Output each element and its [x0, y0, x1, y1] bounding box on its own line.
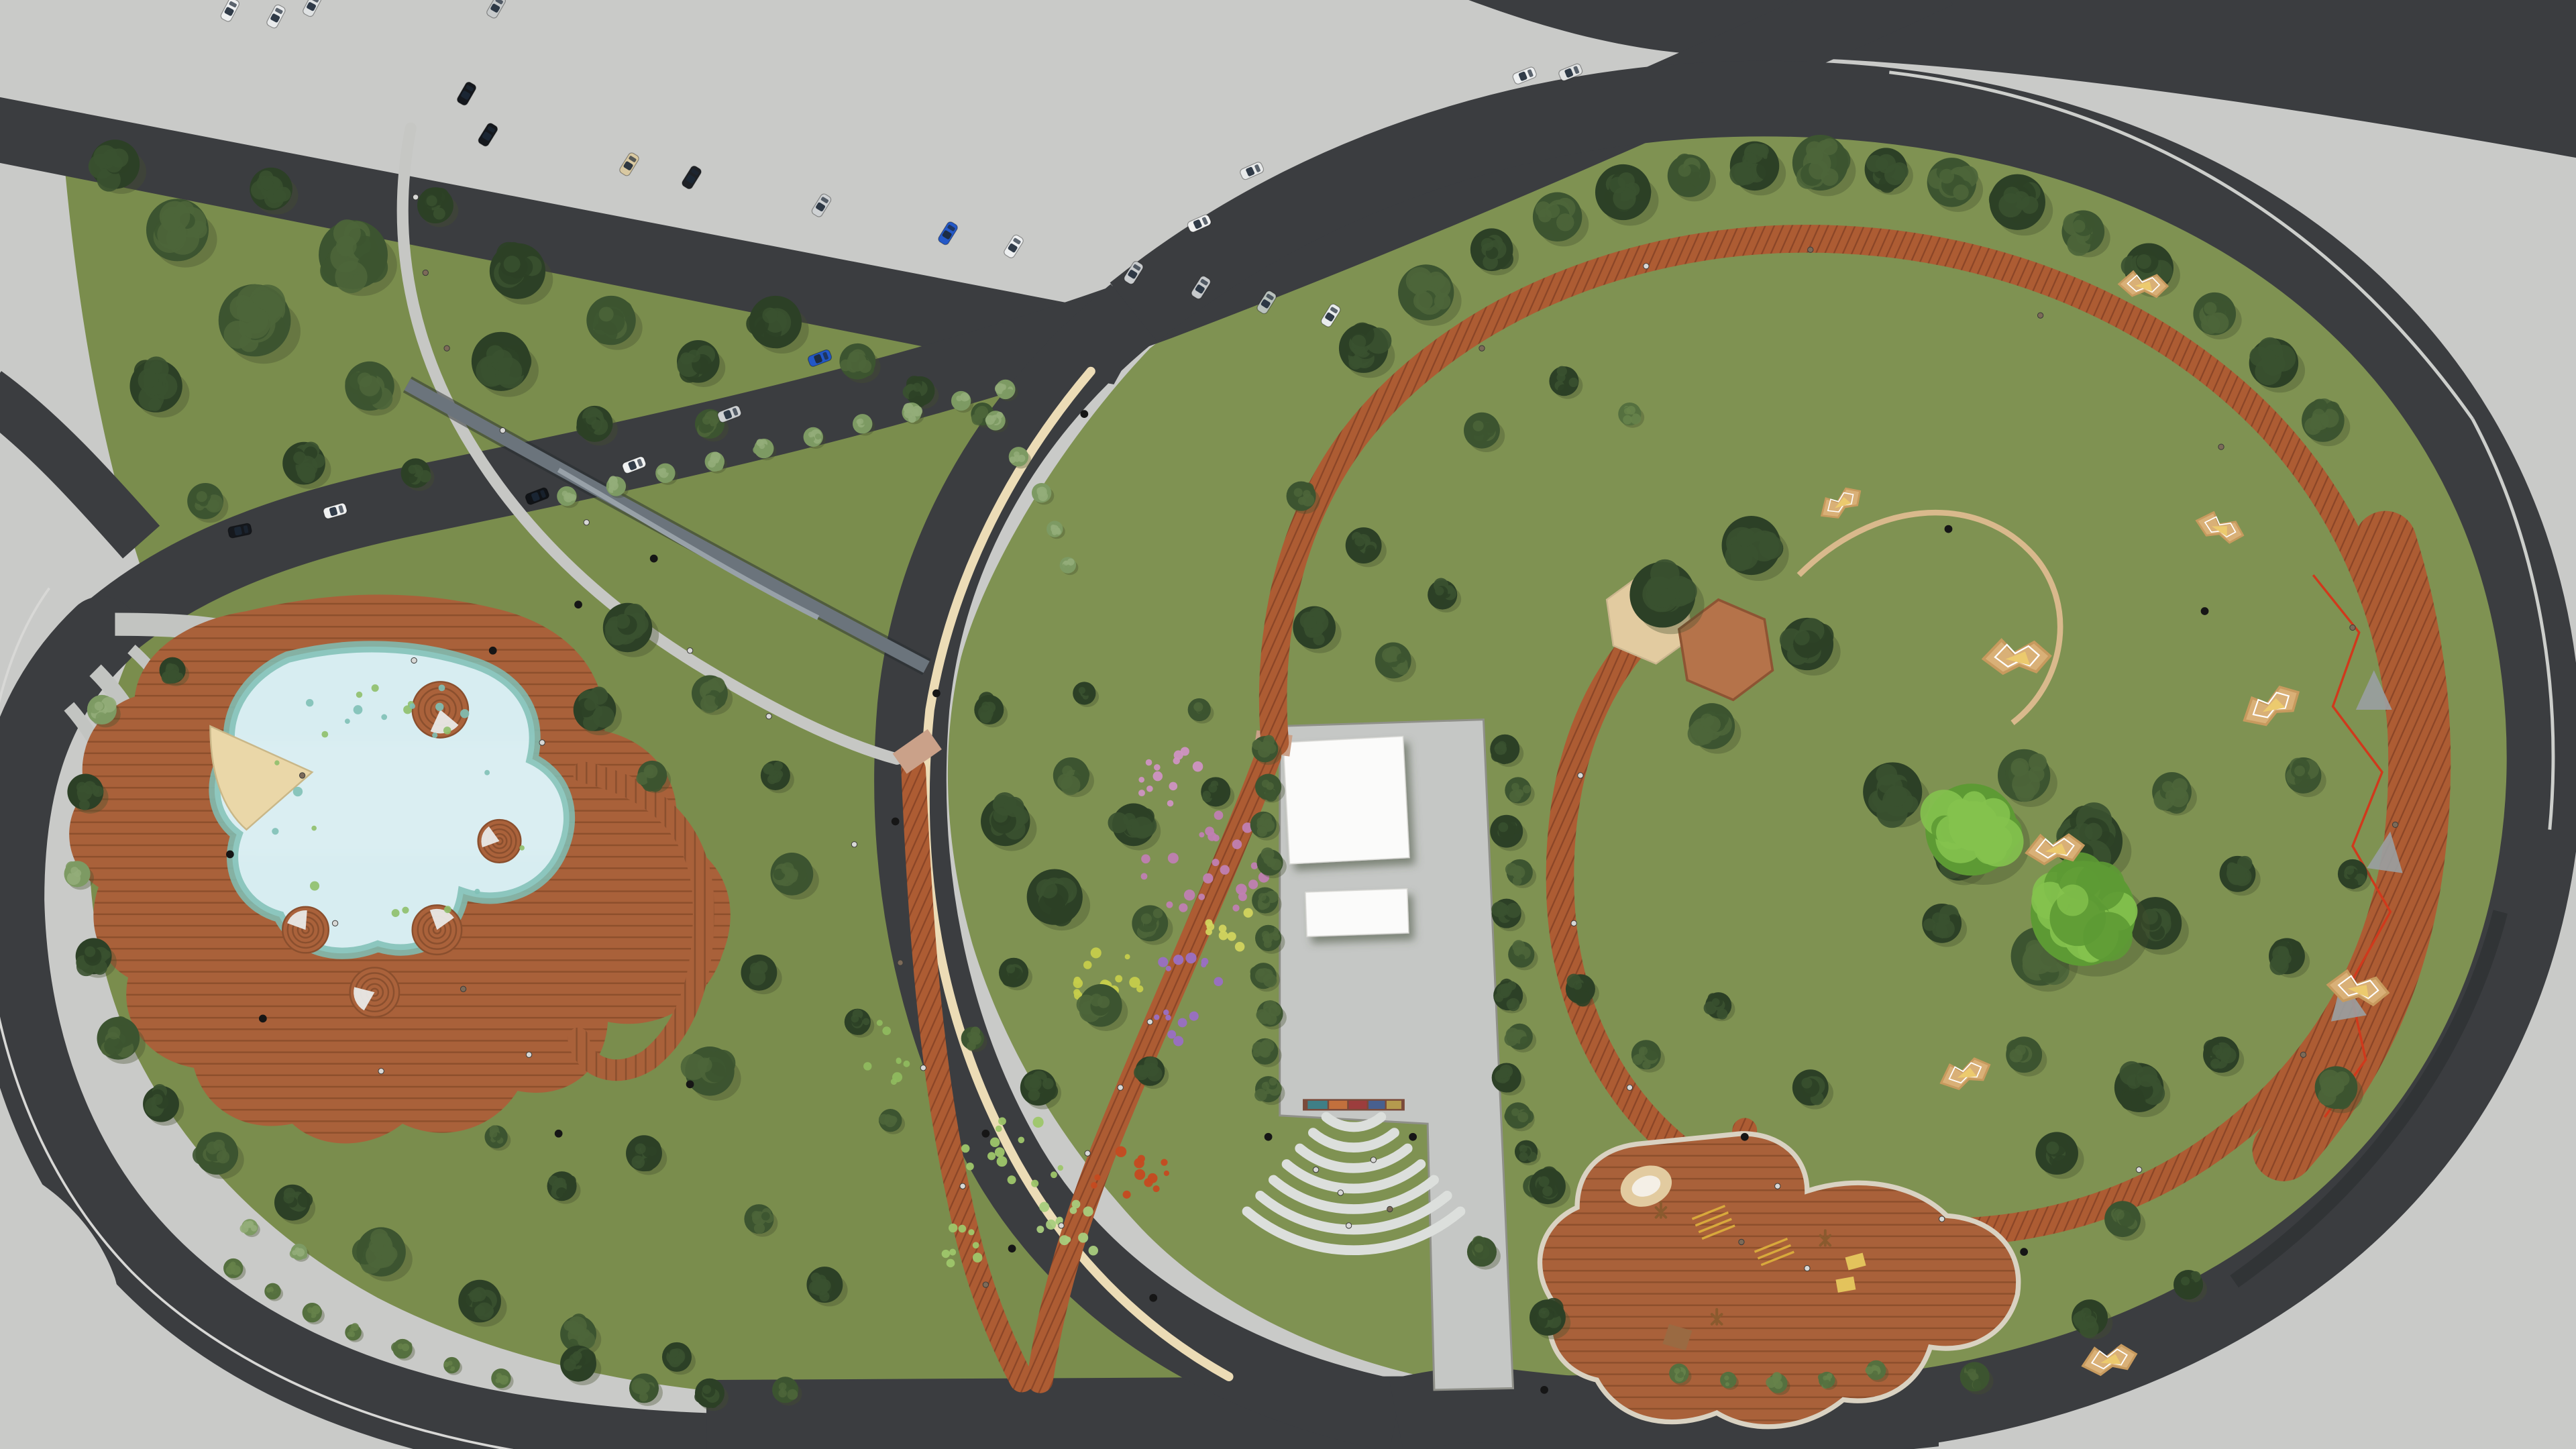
spiral-deck: [478, 820, 521, 863]
bollard: [2020, 1248, 2028, 1256]
person-dot: [413, 195, 418, 200]
person-dot: [2037, 313, 2043, 318]
person-dot: [983, 1282, 988, 1287]
building-main: [1283, 737, 1409, 864]
person-dot: [1571, 920, 1576, 926]
person-dot: [299, 773, 305, 778]
person-dot: [460, 986, 466, 991]
person-dot: [1479, 345, 1485, 351]
spiral-deck: [413, 905, 462, 954]
bollard: [2201, 607, 2209, 615]
person-dot: [423, 270, 428, 275]
person-dot: [1085, 1150, 1090, 1156]
person-dot: [1346, 1223, 1351, 1228]
bollard: [1741, 1133, 1749, 1141]
person-dot: [1644, 264, 1649, 269]
person-dot: [1627, 1085, 1632, 1090]
person-dot: [411, 657, 417, 663]
person-dot: [1313, 1167, 1318, 1173]
bollard: [489, 647, 497, 655]
person-dot: [898, 960, 903, 965]
person-dot: [1387, 1206, 1393, 1212]
person-dot: [2350, 625, 2355, 630]
person-dot: [851, 842, 857, 847]
person-dot: [1808, 247, 1813, 252]
person-dot: [2136, 1167, 2141, 1173]
bollard: [892, 818, 900, 826]
person-dot: [960, 1183, 965, 1189]
person-dot: [1118, 1085, 1123, 1090]
person-dot: [2218, 444, 2224, 449]
bollard: [1008, 1244, 1016, 1252]
person-dot: [378, 1069, 384, 1074]
bollard: [259, 1014, 267, 1022]
bollard: [1080, 410, 1088, 418]
person-dot: [687, 648, 692, 653]
person-dot: [539, 740, 545, 745]
person-dot: [766, 714, 771, 719]
bollard: [932, 690, 941, 698]
person-dot: [332, 920, 337, 926]
person-dot: [1147, 1019, 1152, 1024]
person-dot: [1775, 1183, 1780, 1189]
spiral-deck: [350, 967, 399, 1016]
bollard: [1149, 1294, 1157, 1302]
person-dot: [500, 427, 505, 433]
bollard: [1945, 525, 1953, 533]
person-dot: [526, 1052, 531, 1057]
spiral-deck: [282, 907, 329, 953]
bollard: [1265, 1133, 1273, 1141]
person-dot: [920, 1065, 926, 1071]
person-dot: [1805, 1265, 1810, 1271]
person-dot: [2300, 1052, 2306, 1057]
bollard: [650, 555, 658, 563]
person-dot: [1059, 1223, 1064, 1228]
bollard: [555, 1130, 563, 1138]
person-dot: [1578, 773, 1583, 778]
stage-mural: [1303, 1099, 1405, 1110]
bollard: [574, 600, 582, 608]
person-dot: [1338, 1190, 1343, 1195]
person-dot: [2392, 822, 2398, 827]
bollard: [982, 1130, 990, 1138]
person-dot: [1371, 1157, 1376, 1163]
building-annex: [1305, 889, 1409, 936]
park-masterplan-rendering: [0, 0, 2576, 1449]
person-dot: [1939, 1216, 1945, 1222]
bollard: [226, 851, 234, 859]
bollard: [686, 1080, 694, 1088]
bollard: [1409, 1133, 1417, 1141]
person-dot: [584, 520, 589, 525]
person-dot: [444, 345, 449, 351]
person-dot: [1739, 1239, 1744, 1244]
bollard: [1540, 1386, 1548, 1394]
